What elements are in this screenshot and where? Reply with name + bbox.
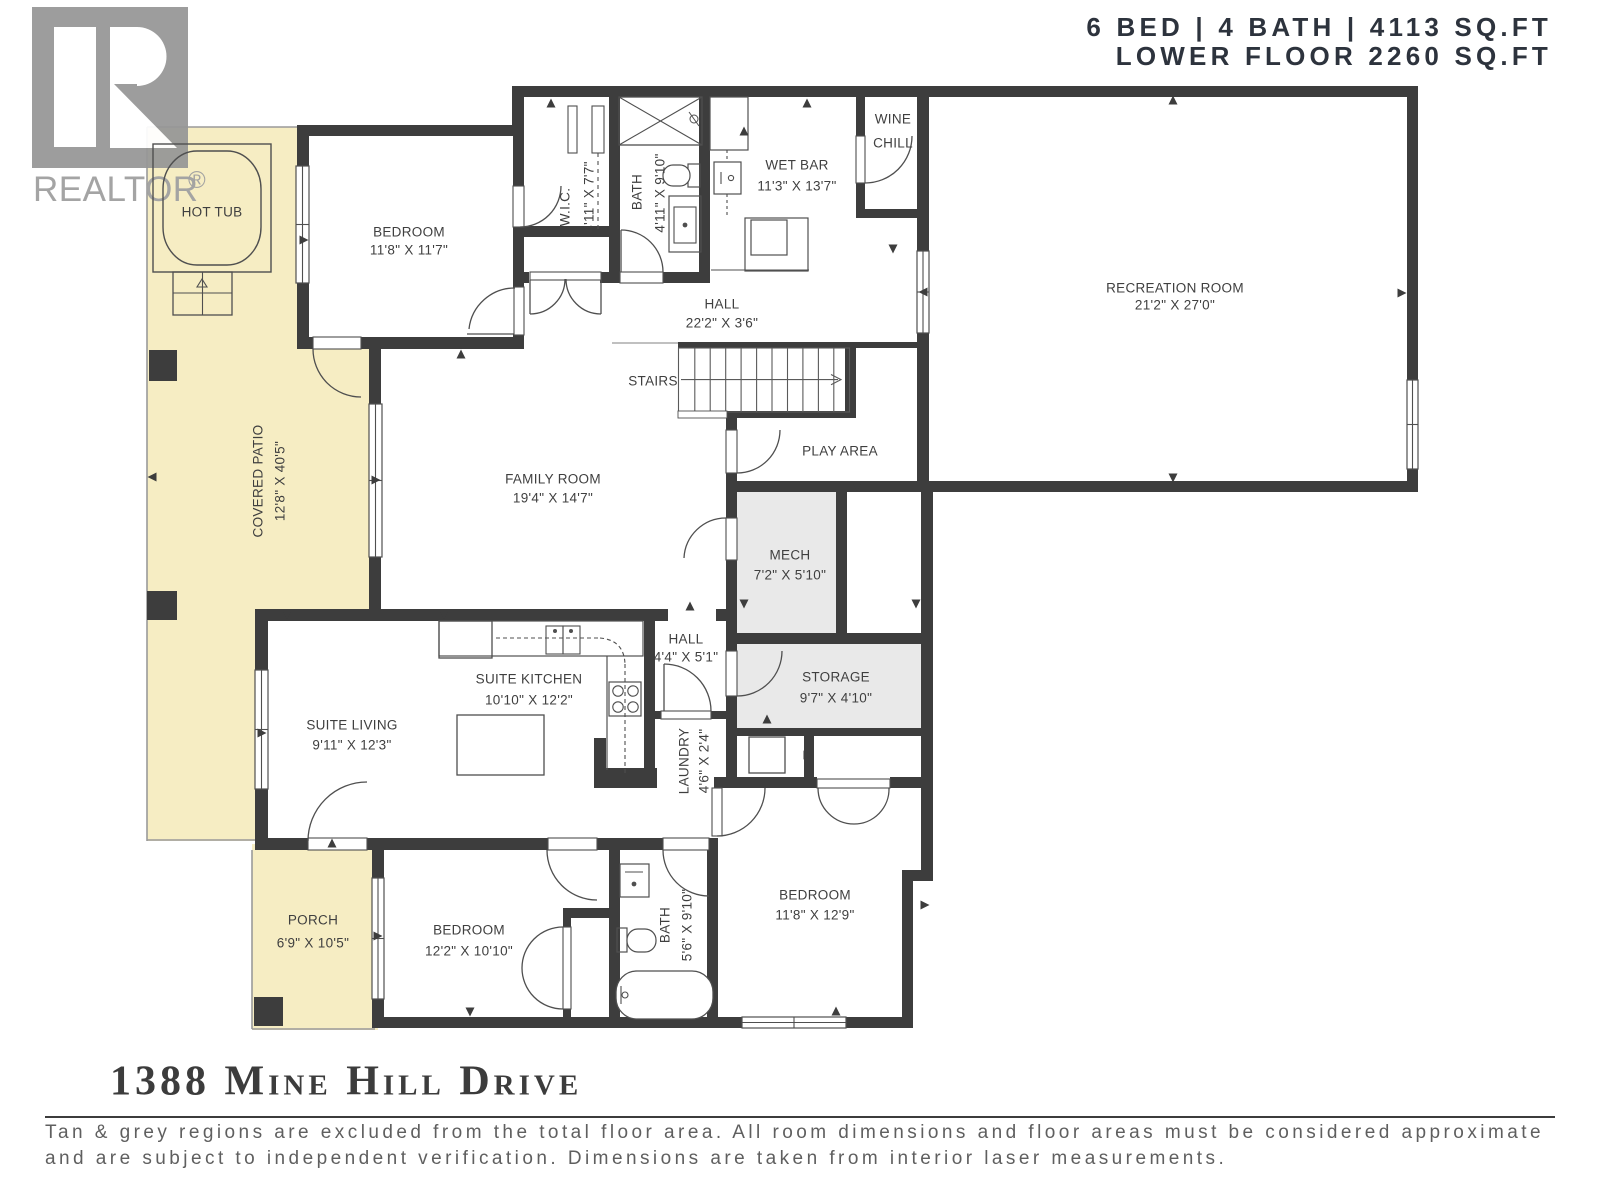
svg-text:Tan & grey regions are exclude: Tan & grey regions are excluded from the… [45, 1122, 1544, 1143]
svg-text:RECREATION ROOM: RECREATION ROOM [1106, 281, 1244, 296]
svg-text:SUITE LIVING: SUITE LIVING [306, 718, 397, 733]
svg-text:LAUNDRY: LAUNDRY [677, 728, 692, 794]
svg-text:BEDROOM: BEDROOM [779, 888, 851, 903]
svg-text:4'4" X 5'1": 4'4" X 5'1" [654, 650, 719, 665]
svg-text:6'9" X 10'5": 6'9" X 10'5" [277, 936, 349, 951]
svg-text:11'8" X 11'7": 11'8" X 11'7" [370, 243, 448, 258]
svg-text:STAIRS: STAIRS [628, 374, 678, 389]
svg-text:CHILL: CHILL [873, 136, 913, 151]
svg-text:19'4" X 14'7": 19'4" X 14'7" [513, 491, 593, 506]
svg-text:21'2" X 27'0": 21'2" X 27'0" [1135, 298, 1215, 313]
svg-text:9'7" X 4'10": 9'7" X 4'10" [800, 691, 872, 706]
svg-text:11'3" X 13'7": 11'3" X 13'7" [757, 179, 836, 194]
svg-text:BEDROOM: BEDROOM [433, 923, 505, 938]
svg-text:WET BAR: WET BAR [765, 158, 828, 173]
svg-text:11'8" X 12'9": 11'8" X 12'9" [775, 908, 854, 923]
svg-text:WINE: WINE [875, 112, 911, 127]
svg-text:LOWER FLOOR 2260 SQ.FT: LOWER FLOOR 2260 SQ.FT [1116, 41, 1552, 71]
svg-text:FAMILY ROOM: FAMILY ROOM [505, 472, 601, 487]
svg-text:BEDROOM: BEDROOM [373, 225, 445, 240]
svg-text:BATH: BATH [658, 907, 673, 943]
svg-text:BATH: BATH [630, 174, 645, 210]
svg-text:PORCH: PORCH [288, 913, 338, 928]
svg-text:®: ® [188, 167, 206, 194]
svg-text:REALTOR: REALTOR [33, 170, 199, 209]
svg-text:4'6" X 2'4": 4'6" X 2'4" [697, 729, 712, 794]
svg-text:MECH: MECH [770, 548, 811, 563]
svg-text:HALL: HALL [705, 297, 740, 312]
svg-text:6 BED | 4 BATH | 4113 SQ.FT: 6 BED | 4 BATH | 4113 SQ.FT [1086, 12, 1552, 42]
svg-text:12'8" X 40'5": 12'8" X 40'5" [273, 441, 288, 521]
svg-text:STORAGE: STORAGE [802, 670, 870, 685]
svg-text:4'11" X 9'10": 4'11" X 9'10" [653, 153, 668, 232]
svg-text:5'6" X 9'10": 5'6" X 9'10" [680, 889, 695, 961]
svg-text:12'2" X 10'10": 12'2" X 10'10" [425, 944, 513, 959]
svg-text:COVERED PATIO: COVERED PATIO [251, 425, 266, 538]
svg-text:9'11" X 12'3": 9'11" X 12'3" [312, 738, 391, 753]
svg-text:HALL: HALL [669, 632, 704, 647]
svg-text:4'11" X 7'7": 4'11" X 7'7" [582, 161, 597, 232]
svg-text:7'2" X 5'10": 7'2" X 5'10" [754, 568, 826, 583]
svg-text:HOT TUB: HOT TUB [182, 205, 243, 220]
svg-text:PLAY AREA: PLAY AREA [802, 444, 878, 459]
svg-text:10'10" X 12'2": 10'10" X 12'2" [485, 693, 573, 708]
svg-text:and are subject to independent: and are subject to independent verificat… [45, 1148, 1227, 1169]
svg-text:1388 Mine Hill Drive: 1388 Mine Hill Drive [110, 1059, 582, 1105]
svg-text:SUITE KITCHEN: SUITE KITCHEN [476, 672, 583, 687]
svg-text:W.I.C.: W.I.C. [558, 188, 573, 227]
svg-text:22'2" X 3'6": 22'2" X 3'6" [686, 316, 758, 331]
